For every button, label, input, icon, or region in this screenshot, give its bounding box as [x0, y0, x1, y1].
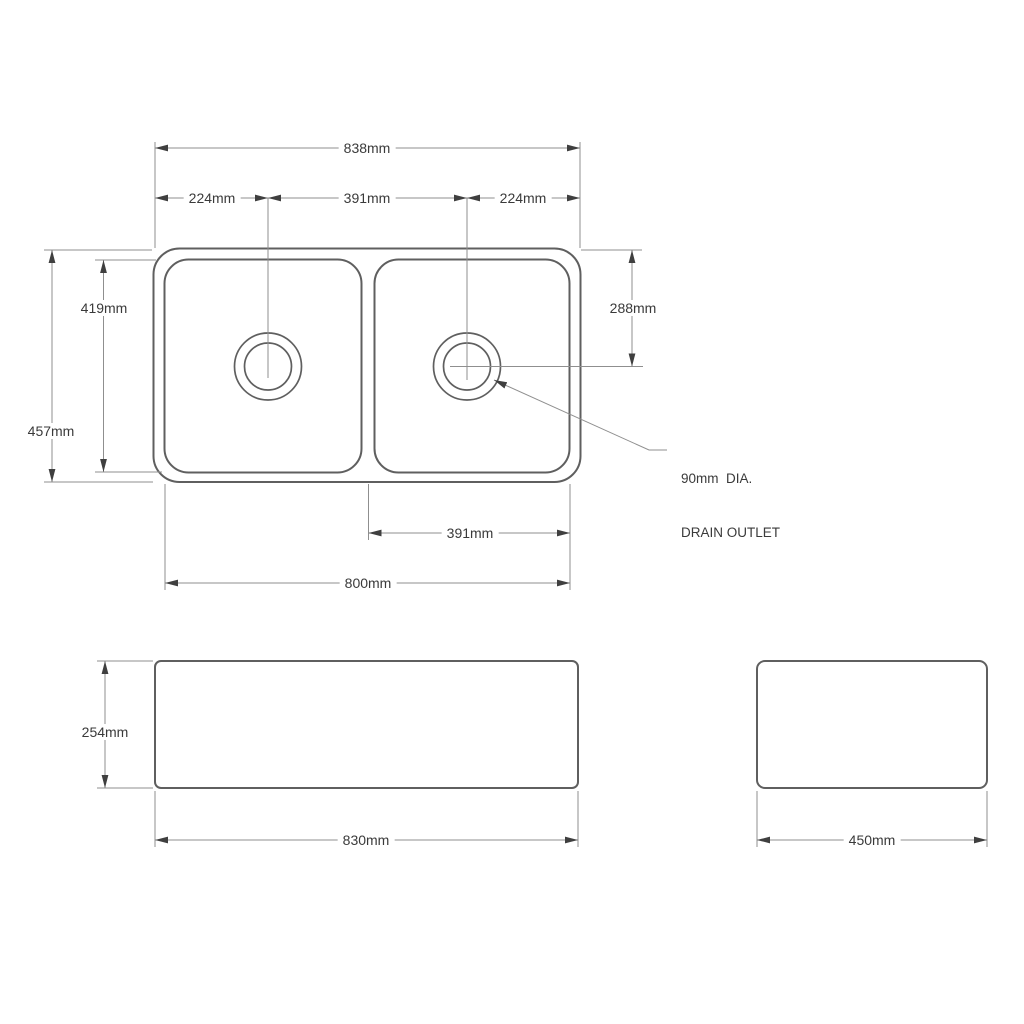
dim-label-side-width: 450mm [844, 832, 901, 848]
drain-outlet-note: 90mm DIA. DRAIN OUTLET [681, 434, 780, 578]
front-view [97, 661, 578, 847]
dimension-lines-top-view [52, 148, 632, 583]
front-view-outline [155, 661, 578, 788]
dim-label-left-drain-offset: 224mm [184, 190, 241, 206]
dim-label-bowl-width: 391mm [442, 525, 499, 541]
dim-label-drain-position: 288mm [605, 300, 662, 316]
extension-lines-front-view [97, 661, 578, 847]
dim-label-front-width: 830mm [338, 832, 395, 848]
side-view [757, 661, 987, 847]
top-view [44, 142, 667, 590]
dim-label-drain-spacing: 391mm [339, 190, 396, 206]
sink-rim-outline [154, 249, 581, 483]
left-bowl-outline [165, 260, 362, 473]
drain-outlet-note-line2: DRAIN OUTLET [681, 524, 780, 542]
dim-label-base-width: 800mm [340, 575, 397, 591]
technical-drawing-sink: 838mm 224mm 391mm 224mm 419mm 457mm 288m… [0, 0, 1024, 1024]
drain-outlet-note-line1: 90mm DIA. [681, 470, 780, 488]
dim-label-right-drain-offset: 224mm [495, 190, 552, 206]
dim-label-overall-front-to-back: 457mm [23, 423, 80, 439]
dim-label-bowl-front-to-back: 419mm [76, 300, 133, 316]
side-view-outline [757, 661, 987, 788]
drawing-linework [0, 0, 1024, 1024]
dim-label-overall-width: 838mm [339, 140, 396, 156]
dim-label-front-height: 254mm [77, 724, 134, 740]
